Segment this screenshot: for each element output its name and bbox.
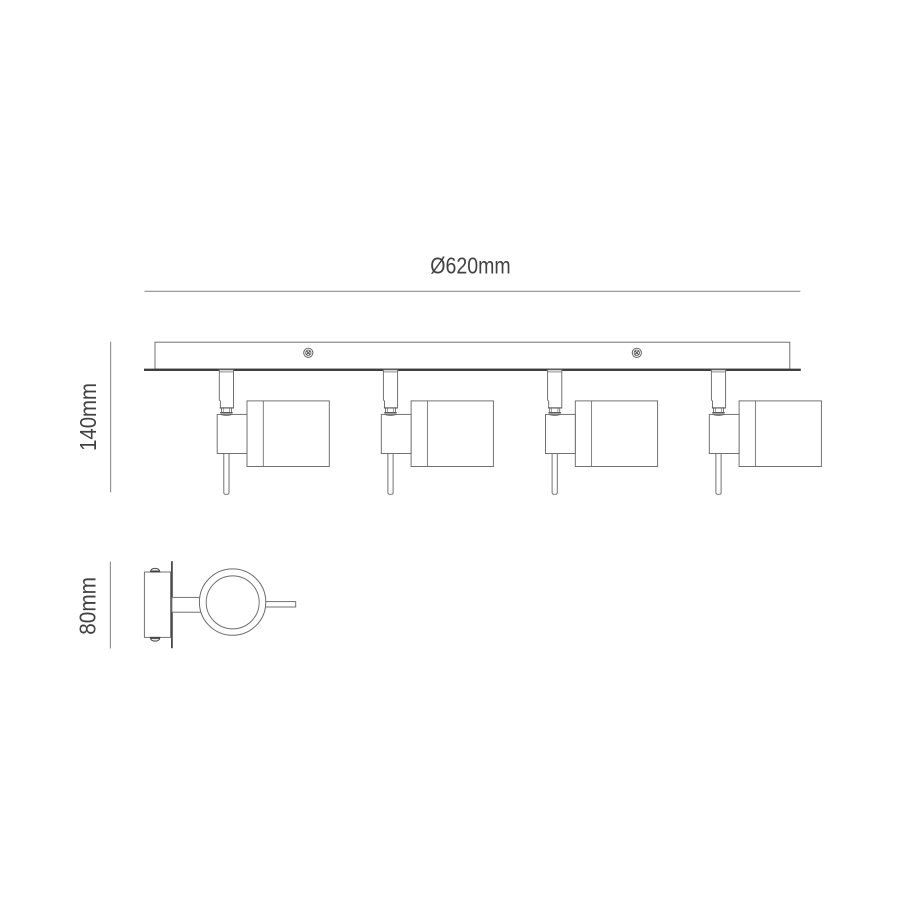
- svg-text:80mm: 80mm: [74, 577, 100, 635]
- svg-text:Ø620mm: Ø620mm: [430, 253, 510, 279]
- svg-text:140mm: 140mm: [75, 383, 101, 451]
